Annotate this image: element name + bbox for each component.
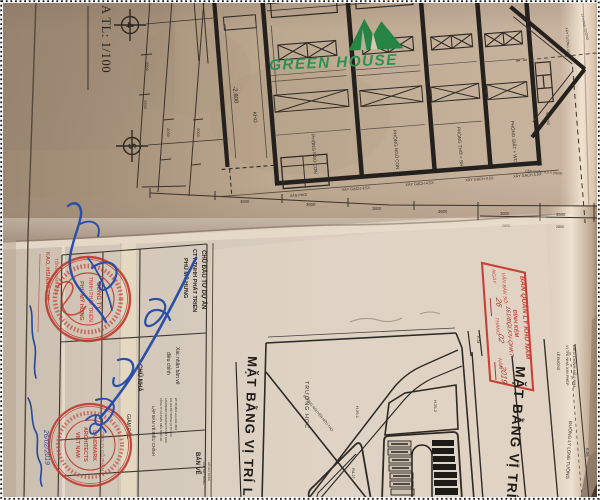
svg-text:VỊ TRÍ NHÀ XIN PHÉP: VỊ TRÍ NHÀ XIN PHÉP bbox=[565, 345, 570, 386]
svg-text:ĐT: 08 3824 xxxx FAX 3824: ĐT: 08 3824 xxxx FAX 3824 bbox=[174, 398, 178, 431]
svg-text:TỔNG GIÁM ĐỐC: TỔNG GIÁM ĐỐC bbox=[54, 258, 60, 296]
svg-text:2800: 2800 bbox=[556, 225, 564, 229]
svg-text:H.29-1: H.29-1 bbox=[355, 406, 360, 419]
svg-text:6.06: 6.06 bbox=[585, 448, 590, 457]
svg-text:H-34: H-34 bbox=[476, 336, 480, 343]
svg-text:26/02/2019: 26/02/2019 bbox=[42, 429, 50, 465]
svg-text:3550: 3550 bbox=[143, 100, 148, 110]
svg-text:- HỒ SƠ XPXD: - HỒ SƠ XPXD bbox=[207, 460, 212, 482]
svg-text:- CÁC MẶT BẰNG: - CÁC MẶT BẰNG bbox=[202, 460, 207, 485]
svg-text:2019: 2019 bbox=[499, 364, 509, 385]
svg-text:ARCHITECTS: ARCHITECTS bbox=[82, 427, 88, 462]
svg-text:LÊ ĐƯỜNG: LÊ ĐƯỜNG bbox=[556, 352, 561, 371]
svg-text:H.29-2: H.29-2 bbox=[433, 400, 438, 413]
svg-text:LANDMARK: LANDMARK bbox=[91, 430, 97, 461]
svg-text:NGÀY: NGÀY bbox=[490, 269, 498, 285]
svg-text:LẬP BẢN VẼ ĐIỀU CHỈNH: LẬP BẢN VẼ ĐIỀU CHỈNH bbox=[151, 406, 156, 456]
svg-text:5: 5 bbox=[126, 143, 138, 149]
svg-text:R4-27: R4-27 bbox=[351, 468, 356, 480]
svg-text:4: 4 bbox=[124, 22, 136, 28]
svg-text:BẢN VẼ: BẢN VẼ bbox=[194, 452, 201, 475]
svg-text:2000: 2000 bbox=[196, 128, 201, 138]
svg-text:Xác nhận bản vẽ: Xác nhận bản vẽ bbox=[174, 347, 180, 385]
svg-text:3600: 3600 bbox=[500, 211, 510, 216]
svg-text:3600: 3600 bbox=[306, 202, 316, 207]
svg-text:5900: 5900 bbox=[145, 62, 150, 72]
svg-text:A TL: 1/100: A TL: 1/100 bbox=[99, 5, 113, 73]
svg-text:ĐIỀU CHỈNH MẪU NHÀ: ĐIỀU CHỈNH MẪU NHÀ bbox=[572, 345, 577, 388]
svg-text:điều chỉnh: điều chỉnh bbox=[165, 352, 172, 375]
svg-text:CHỦ ĐẦU TƯ DỰ ÁN: CHỦ ĐẦU TƯ DỰ ÁN bbox=[200, 250, 207, 309]
svg-text:3600: 3600 bbox=[240, 199, 250, 204]
svg-text:KAO, HSIANG-CHI: KAO, HSIANG-CHI bbox=[44, 252, 50, 300]
svg-text:CÔNG TY CỔ PHẦN: CÔNG TY CỔ PHẦN bbox=[100, 428, 106, 471]
svg-text:KHO: KHO bbox=[251, 112, 258, 123]
svg-text:3800: 3800 bbox=[372, 206, 382, 211]
svg-text:VIỆT NAM: VIỆT NAM bbox=[74, 432, 82, 458]
svg-text:3600: 3600 bbox=[556, 212, 566, 217]
svg-text:3600: 3600 bbox=[438, 209, 448, 214]
svg-text:2000: 2000 bbox=[166, 128, 171, 138]
svg-text:161 HAI BÀ TRƯNG Q1 TP HCM: 161 HAI BÀ TRƯNG Q1 TP HCM bbox=[169, 398, 173, 437]
